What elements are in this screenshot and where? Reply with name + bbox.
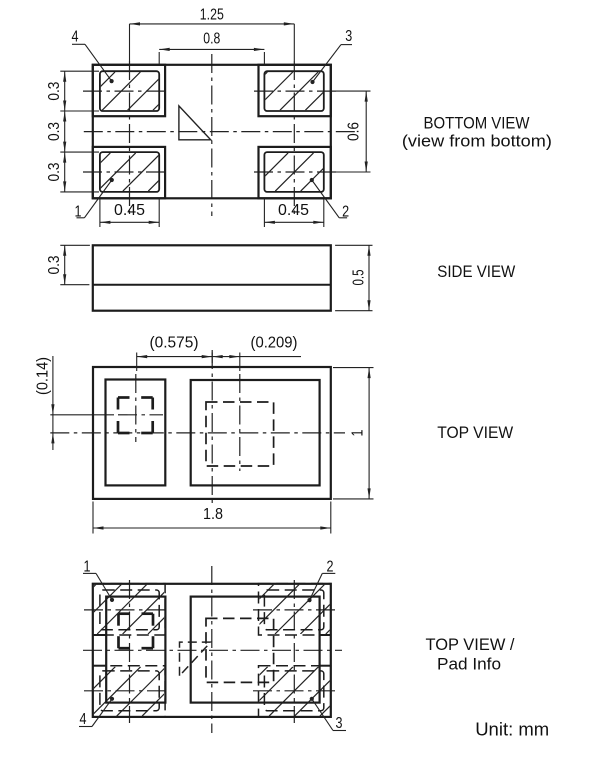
svg-text:0.3: 0.3: [46, 82, 63, 101]
svg-text:0.8: 0.8: [203, 31, 220, 48]
svg-text:TOP VIEW /: TOP VIEW /: [426, 635, 515, 654]
svg-text:0.45: 0.45: [278, 202, 309, 219]
svg-text:0.6: 0.6: [346, 122, 363, 141]
svg-text:(0.14): (0.14): [35, 357, 52, 395]
svg-text:0.5: 0.5: [351, 269, 368, 285]
svg-text:(view from bottom): (view from bottom): [402, 132, 552, 151]
svg-text:Unit: mm: Unit: mm: [475, 719, 549, 740]
svg-text:0.3: 0.3: [46, 122, 63, 141]
svg-text:1.25: 1.25: [200, 7, 224, 24]
svg-text:1.8: 1.8: [203, 506, 223, 523]
svg-text:4: 4: [80, 711, 87, 728]
svg-text:(0.209): (0.209): [251, 335, 298, 352]
svg-text:Pad Info: Pad Info: [437, 655, 501, 674]
svg-text:(0.575): (0.575): [150, 335, 199, 352]
svg-text:3: 3: [336, 715, 343, 732]
svg-text:4: 4: [72, 29, 79, 46]
svg-text:0.3: 0.3: [46, 162, 63, 181]
svg-text:0.45: 0.45: [114, 202, 145, 219]
svg-text:3: 3: [345, 28, 352, 45]
svg-text:1: 1: [350, 429, 367, 436]
svg-text:SIDE VIEW: SIDE VIEW: [437, 262, 515, 281]
svg-text:0.3: 0.3: [46, 255, 63, 274]
svg-text:TOP VIEW: TOP VIEW: [437, 423, 513, 442]
svg-text:BOTTOM VIEW: BOTTOM VIEW: [424, 114, 530, 133]
